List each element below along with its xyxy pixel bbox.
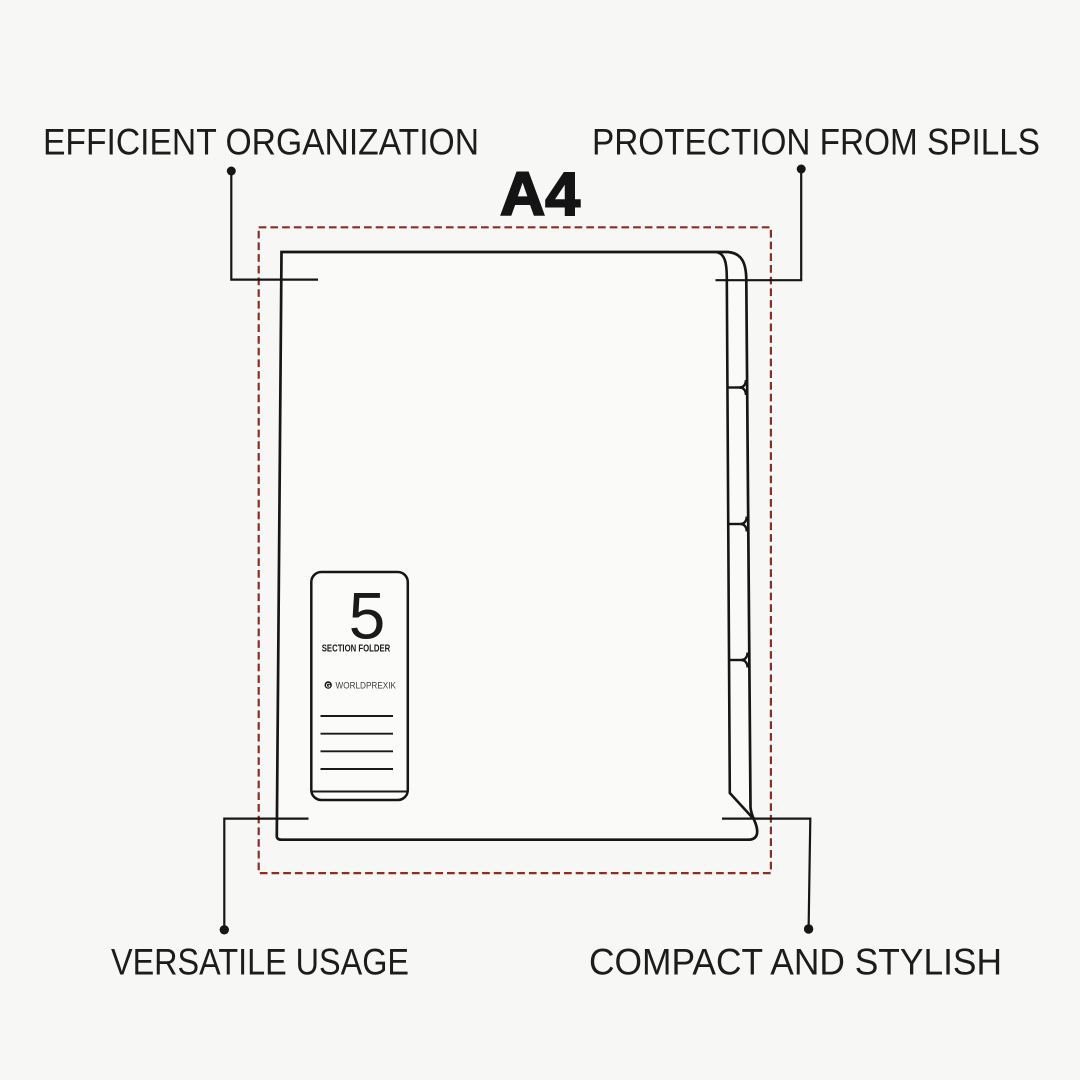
svg-text:COMPACT AND STYLISH: COMPACT AND STYLISH	[589, 942, 1002, 983]
svg-text:5: 5	[349, 579, 386, 653]
svg-text:PROTECTION FROM SPILLS: PROTECTION FROM SPILLS	[592, 122, 1040, 163]
svg-text:EFFICIENT ORGANIZATION: EFFICIENT ORGANIZATION	[43, 122, 479, 163]
svg-text:WORLDPREXIK: WORLDPREXIK	[336, 680, 397, 690]
svg-text:SECTION FOLDER: SECTION FOLDER	[322, 644, 391, 655]
svg-text:VERSATILE USAGE: VERSATILE USAGE	[111, 942, 409, 983]
svg-text:A4: A4	[500, 160, 580, 228]
svg-text:G: G	[326, 682, 331, 689]
